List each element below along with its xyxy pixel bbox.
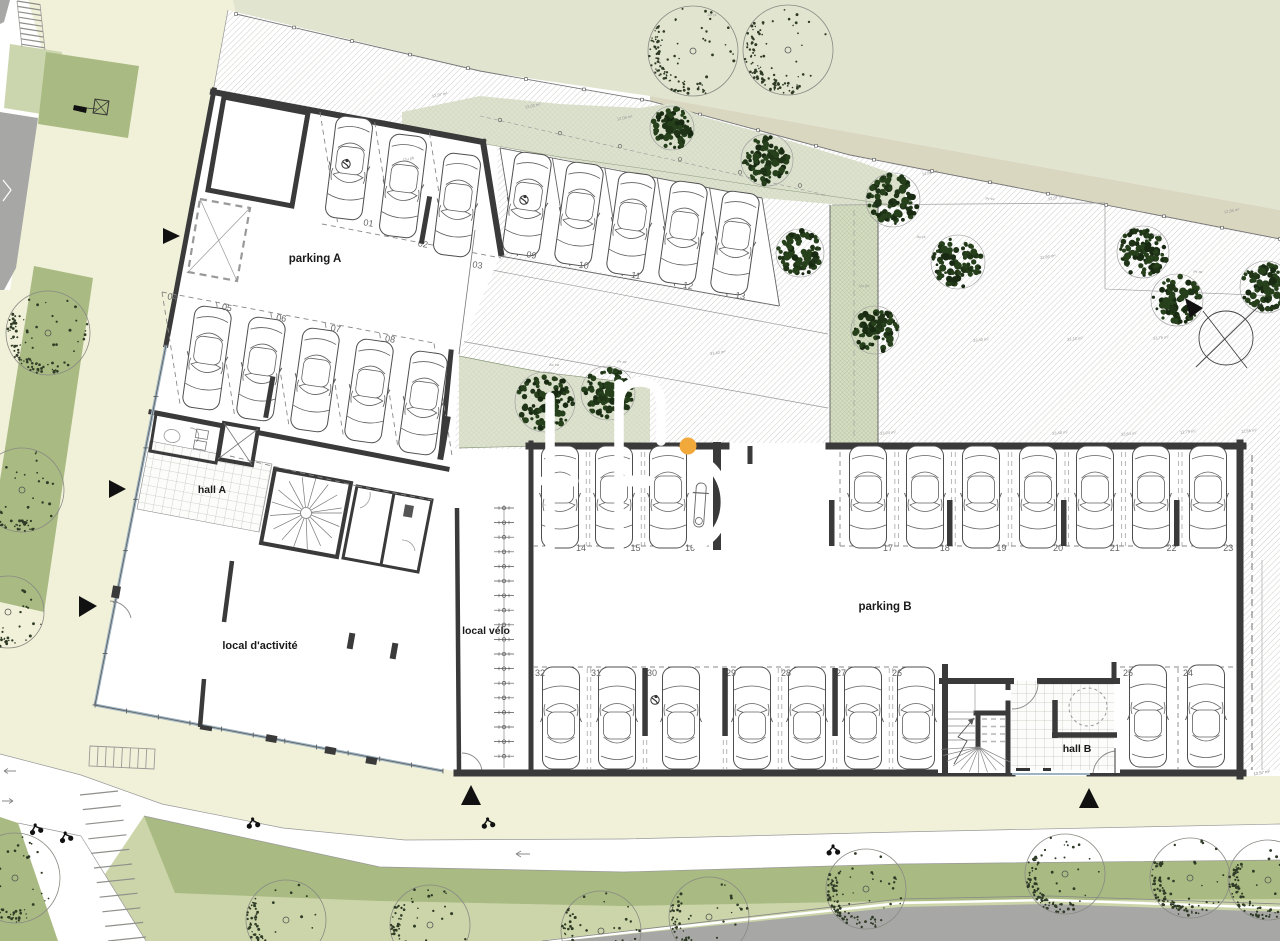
svg-text:Pr sv: Pr sv [985, 196, 994, 201]
svg-text:25: 25 [1123, 668, 1133, 678]
svg-text:17: 17 [883, 543, 893, 553]
svg-text:hall B: hall B [1063, 743, 1092, 755]
svg-text:32: 32 [535, 668, 545, 678]
svg-text:03: 03 [472, 259, 484, 271]
svg-text:24: 24 [1183, 668, 1193, 678]
svg-text:13: 13 [735, 290, 747, 302]
svg-text:09: 09 [526, 249, 538, 261]
svg-text:12: 12 [682, 280, 694, 292]
svg-text:Ac pl: Ac pl [708, 12, 717, 17]
svg-text:19: 19 [996, 543, 1006, 553]
svg-text:hall A: hall A [198, 484, 227, 496]
svg-text:30: 30 [647, 668, 657, 678]
svg-text:06: 06 [276, 312, 288, 324]
svg-text:26: 26 [892, 668, 902, 678]
svg-text:21: 21 [1110, 543, 1120, 553]
svg-text:04: 04 [167, 291, 179, 303]
svg-text:23: 23 [1223, 543, 1233, 553]
svg-text:11: 11 [630, 270, 641, 281]
svg-text:10: 10 [578, 259, 590, 271]
svg-text:Pr av: Pr av [1193, 269, 1202, 274]
svg-text:Ac pl: Ac pl [1153, 232, 1162, 237]
svg-text:15: 15 [630, 543, 640, 553]
svg-text:14: 14 [576, 543, 586, 553]
svg-text:28: 28 [781, 668, 791, 678]
svg-text:Ac pl: Ac pl [917, 234, 926, 239]
svg-text:local vélo: local vélo [462, 625, 510, 637]
svg-text:Ac ca: Ac ca [549, 362, 560, 367]
svg-text:Qu pb: Qu pb [859, 283, 871, 288]
svg-text:local d'activité: local d'activité [222, 640, 297, 652]
svg-text:parking A: parking A [289, 253, 342, 265]
svg-text:01: 01 [363, 217, 375, 229]
svg-text:Pr av: Pr av [617, 359, 626, 364]
svg-text:07: 07 [330, 323, 342, 335]
svg-text:31: 31 [591, 668, 601, 678]
svg-text:05: 05 [221, 302, 233, 314]
svg-text:parking B: parking B [858, 601, 911, 613]
svg-text:08: 08 [384, 333, 396, 345]
